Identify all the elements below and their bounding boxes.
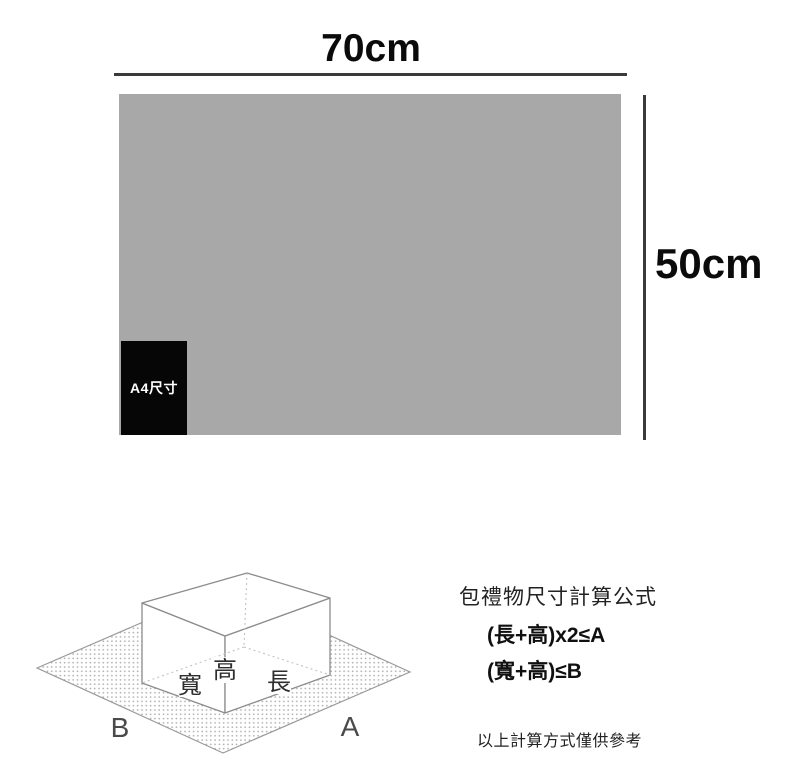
box-height-label: 高 xyxy=(213,657,237,684)
height-dimension-line xyxy=(643,95,646,440)
wrapping-sheet-rectangle: A4尺寸 xyxy=(119,94,621,435)
formula-length-height: (長+高)x2≤A xyxy=(487,619,605,649)
formula-title: 包禮物尺寸計算公式 xyxy=(459,581,657,611)
box-length-label: 長 xyxy=(267,669,291,696)
product-size-diagram: 70cm A4尺寸 50cm xyxy=(0,0,809,759)
sheet-side-a-label: A xyxy=(341,711,360,742)
box-width-label: 寬 xyxy=(178,672,202,699)
gift-wrap-illustration: 寬 高 長 B A xyxy=(20,545,440,759)
formula-width-height: (寬+高)≤B xyxy=(487,655,582,685)
width-dimension-label: 70cm xyxy=(115,27,627,71)
sheet-side-b-label: B xyxy=(111,712,130,743)
formula-disclaimer: 以上計算方式僅供參考 xyxy=(477,727,642,751)
height-dimension-label: 50cm xyxy=(655,240,762,288)
a4-size-label: A4尺寸 xyxy=(130,378,178,398)
width-dimension-line xyxy=(114,73,627,76)
a4-size-reference-box: A4尺寸 xyxy=(121,341,187,435)
